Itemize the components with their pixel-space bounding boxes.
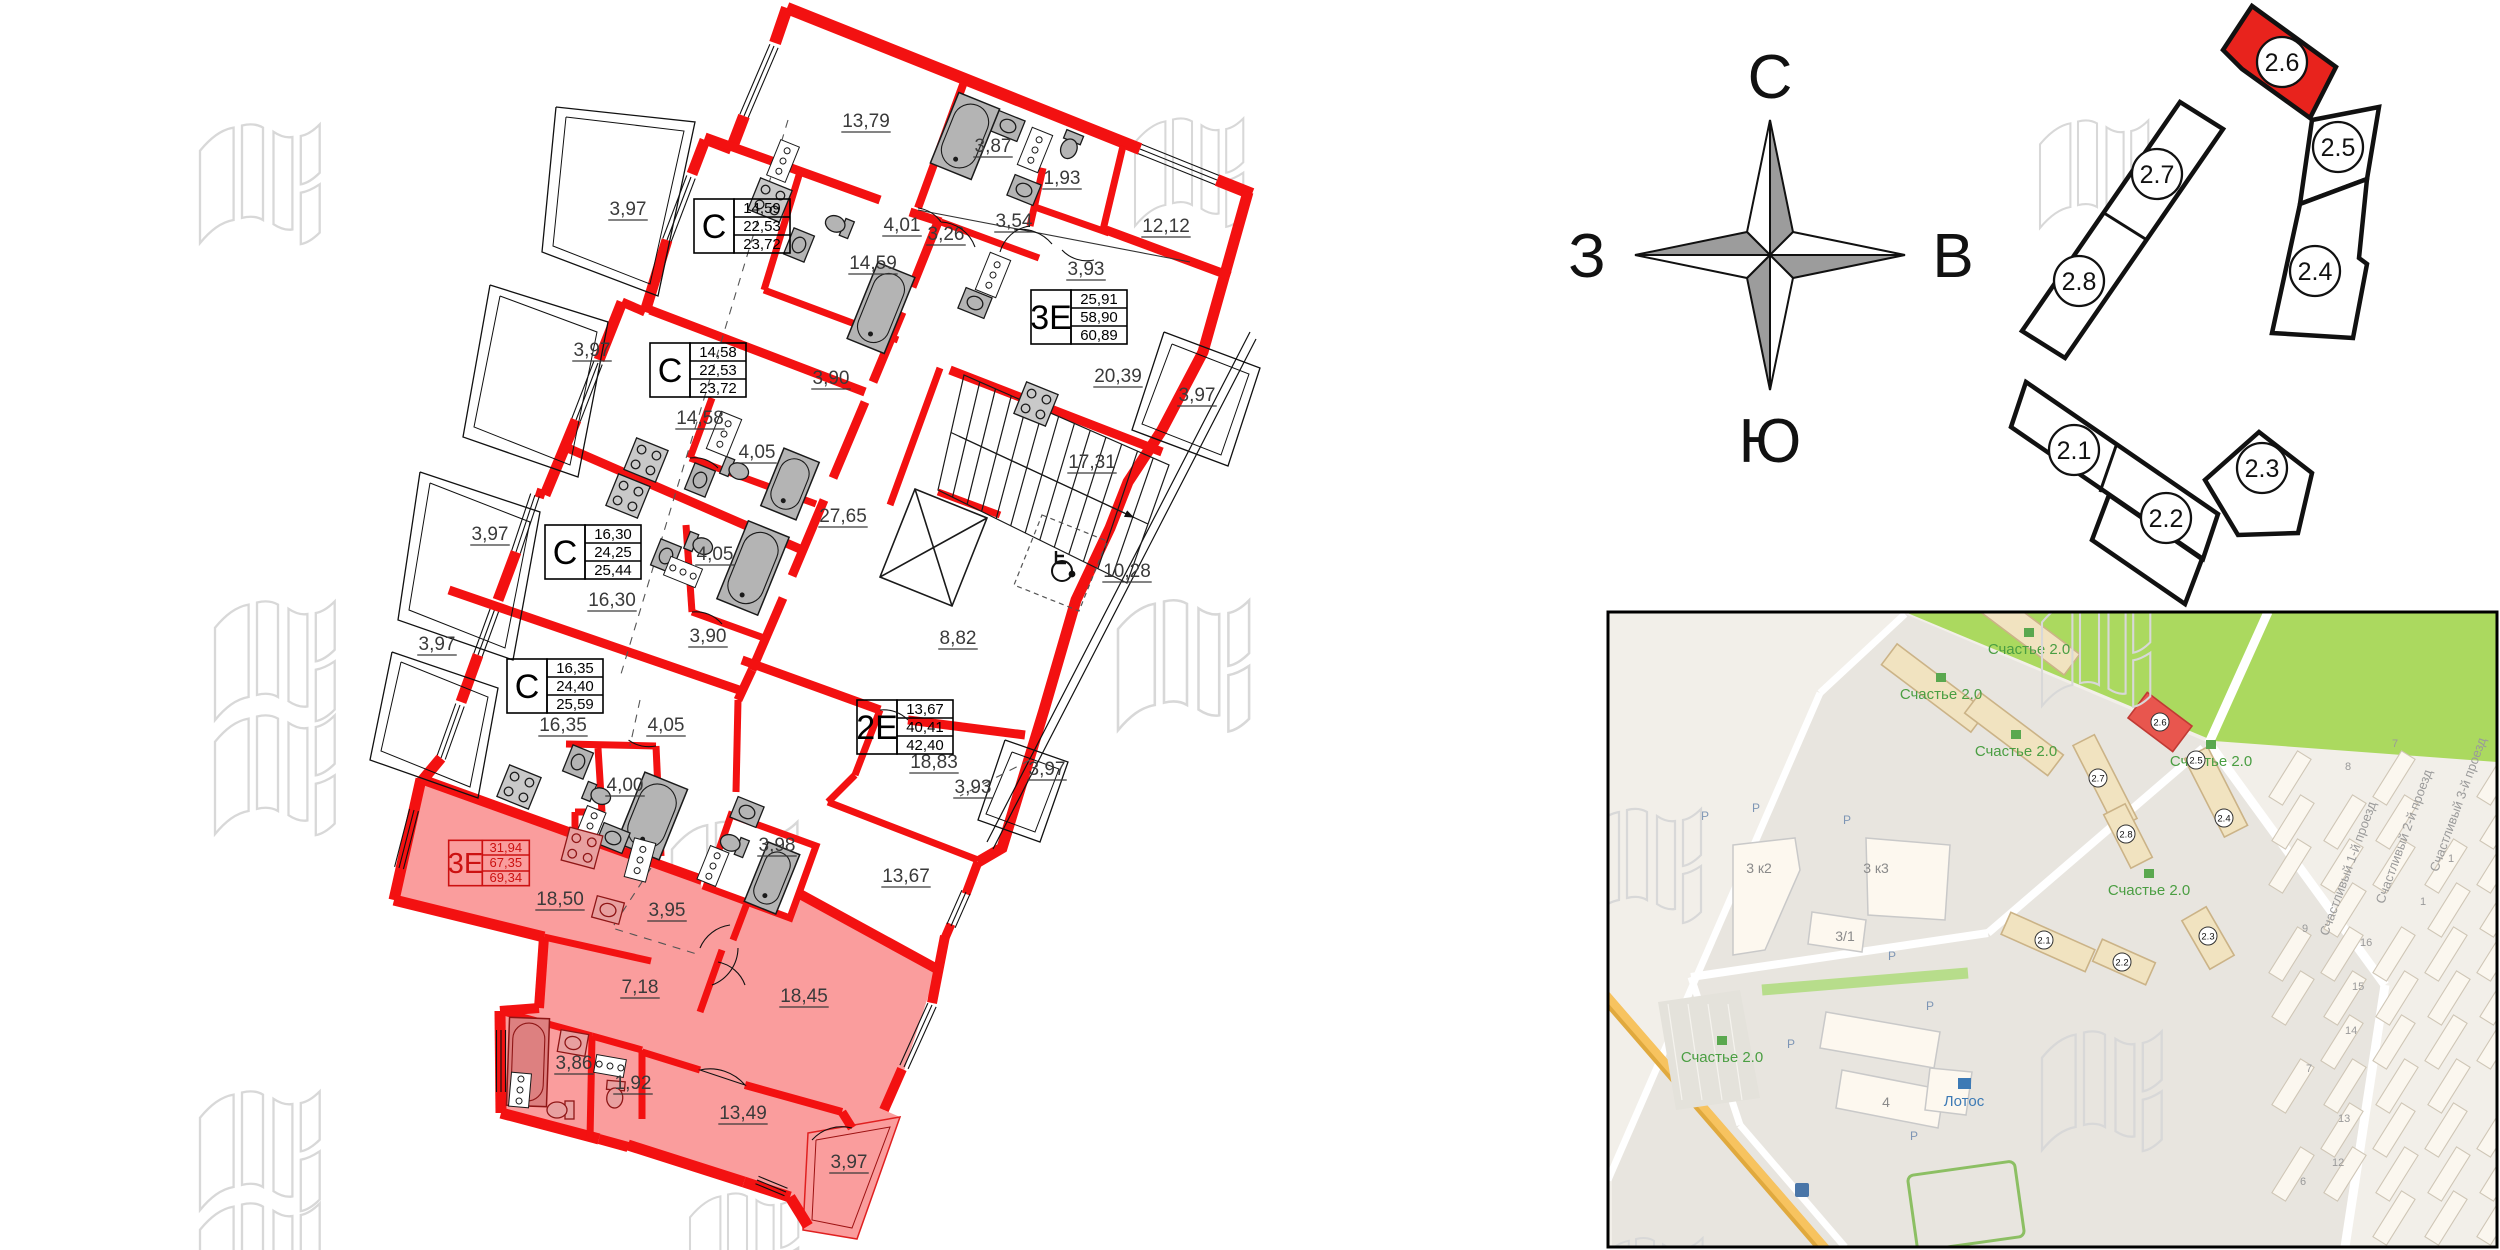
- svg-text:40,41: 40,41: [906, 719, 944, 736]
- svg-text:С: С: [702, 208, 727, 246]
- svg-text:Р: Р: [1926, 999, 1934, 1013]
- svg-text:20,39: 20,39: [1094, 366, 1142, 387]
- svg-text:3Е: 3Е: [448, 848, 483, 880]
- svg-text:3,95: 3,95: [649, 900, 686, 921]
- svg-text:23,72: 23,72: [743, 236, 781, 253]
- svg-text:3Е: 3Е: [1030, 299, 1072, 337]
- svg-text:25,44: 25,44: [594, 562, 632, 579]
- svg-text:2.8: 2.8: [2119, 830, 2132, 841]
- svg-text:Лотос: Лотос: [1944, 1093, 1985, 1110]
- svg-text:7,18: 7,18: [622, 977, 659, 998]
- svg-text:22,53: 22,53: [743, 218, 781, 235]
- svg-text:3,97: 3,97: [831, 1152, 868, 1173]
- svg-text:14,58: 14,58: [699, 344, 737, 361]
- svg-text:Счастье 2.0: Счастье 2.0: [1681, 1049, 1763, 1066]
- svg-text:13: 13: [2338, 1113, 2350, 1125]
- svg-text:18,83: 18,83: [910, 752, 958, 773]
- svg-text:14,59: 14,59: [849, 253, 897, 274]
- svg-text:В: В: [1932, 222, 1973, 291]
- svg-text:1,92: 1,92: [615, 1073, 652, 1094]
- svg-text:69,34: 69,34: [490, 870, 523, 885]
- svg-text:23,72: 23,72: [699, 380, 737, 397]
- svg-text:3,97: 3,97: [472, 524, 509, 545]
- svg-text:2.4: 2.4: [2298, 258, 2333, 286]
- svg-text:58,90: 58,90: [1080, 309, 1118, 326]
- svg-text:16,30: 16,30: [594, 526, 632, 543]
- svg-text:2.6: 2.6: [2265, 49, 2300, 77]
- svg-text:3,93: 3,93: [955, 777, 992, 798]
- svg-text:3,87: 3,87: [975, 136, 1012, 157]
- svg-text:24,25: 24,25: [594, 544, 632, 561]
- svg-text:Р: Р: [1701, 809, 1709, 823]
- svg-text:Р: Р: [1910, 1129, 1918, 1143]
- svg-text:24,40: 24,40: [556, 678, 594, 695]
- svg-text:2.1: 2.1: [2037, 936, 2050, 947]
- svg-text:Р: Р: [1787, 1037, 1795, 1051]
- svg-text:Р: Р: [1843, 813, 1851, 827]
- svg-text:9: 9: [2302, 923, 2308, 935]
- svg-text:8,82: 8,82: [940, 628, 977, 649]
- svg-text:14,59: 14,59: [743, 200, 781, 217]
- svg-text:67,35: 67,35: [490, 855, 523, 870]
- svg-text:С: С: [658, 352, 683, 390]
- svg-text:Счастье 2.0: Счастье 2.0: [2108, 882, 2190, 899]
- svg-text:12,12: 12,12: [1142, 216, 1190, 237]
- svg-text:13,49: 13,49: [719, 1103, 767, 1124]
- svg-text:2.1: 2.1: [2057, 437, 2092, 465]
- svg-text:10,28: 10,28: [1103, 561, 1151, 582]
- svg-text:Ю: Ю: [1739, 407, 1802, 476]
- svg-text:1,93: 1,93: [1044, 168, 1081, 189]
- svg-text:14,58: 14,58: [676, 408, 724, 429]
- svg-text:16,30: 16,30: [588, 590, 636, 611]
- svg-text:2.2: 2.2: [2115, 958, 2128, 969]
- svg-text:15: 15: [2352, 981, 2364, 993]
- svg-text:31,94: 31,94: [490, 840, 523, 855]
- svg-text:18,50: 18,50: [536, 889, 584, 910]
- svg-text:14: 14: [2345, 1025, 2357, 1037]
- svg-text:13,67: 13,67: [882, 866, 930, 887]
- svg-text:С: С: [553, 534, 578, 572]
- svg-text:2.5: 2.5: [2189, 756, 2202, 767]
- svg-text:2.8: 2.8: [2062, 268, 2097, 296]
- svg-text:4,01: 4,01: [884, 215, 921, 236]
- svg-text:3,90: 3,90: [690, 626, 727, 647]
- svg-text:З: З: [1568, 222, 1605, 291]
- svg-text:1: 1: [2420, 896, 2426, 908]
- svg-text:3,98: 3,98: [759, 835, 796, 856]
- svg-text:1: 1: [2448, 853, 2454, 865]
- svg-text:2.3: 2.3: [2201, 932, 2214, 943]
- svg-text:3 к3: 3 к3: [1863, 860, 1889, 876]
- svg-text:16,35: 16,35: [539, 715, 587, 736]
- svg-text:3/1: 3/1: [1835, 928, 1855, 944]
- svg-text:2.6: 2.6: [2153, 718, 2166, 729]
- svg-text:4: 4: [1882, 1094, 1890, 1110]
- svg-text:4,05: 4,05: [739, 442, 776, 463]
- svg-text:8: 8: [2345, 761, 2351, 773]
- svg-text:2.2: 2.2: [2149, 505, 2184, 533]
- svg-text:3,97: 3,97: [1179, 385, 1216, 406]
- svg-text:13,67: 13,67: [906, 701, 944, 718]
- svg-text:3,97: 3,97: [610, 199, 647, 220]
- svg-text:2.5: 2.5: [2321, 134, 2356, 162]
- svg-text:С: С: [515, 668, 540, 706]
- svg-text:3,54: 3,54: [996, 211, 1033, 232]
- svg-text:Р: Р: [1752, 801, 1760, 815]
- svg-text:42,40: 42,40: [906, 737, 944, 754]
- svg-text:13,79: 13,79: [842, 111, 890, 132]
- svg-text:Счастье 2.0: Счастье 2.0: [2170, 753, 2252, 770]
- svg-text:17,31: 17,31: [1068, 452, 1116, 473]
- svg-text:3 к2: 3 к2: [1746, 860, 1772, 876]
- svg-text:Счастье 2.0: Счастье 2.0: [1988, 641, 2070, 658]
- svg-text:3,97: 3,97: [419, 634, 456, 655]
- svg-text:18,45: 18,45: [780, 986, 828, 1007]
- svg-text:Счастье 2.0: Счастье 2.0: [1975, 743, 2057, 760]
- svg-text:22,53: 22,53: [699, 362, 737, 379]
- svg-text:12: 12: [2332, 1157, 2344, 1169]
- svg-text:Р: Р: [1888, 949, 1896, 963]
- svg-text:3,93: 3,93: [1068, 259, 1105, 280]
- svg-text:16,35: 16,35: [556, 660, 594, 677]
- svg-text:7: 7: [2306, 1063, 2312, 1075]
- svg-text:2.7: 2.7: [2140, 161, 2175, 189]
- svg-text:6: 6: [2300, 1176, 2306, 1188]
- svg-text:27,65: 27,65: [819, 506, 867, 527]
- svg-text:25,91: 25,91: [1080, 291, 1118, 308]
- svg-text:25,59: 25,59: [556, 696, 594, 713]
- svg-text:3,97: 3,97: [1029, 759, 1066, 780]
- svg-text:60,89: 60,89: [1080, 327, 1118, 344]
- svg-text:4,05: 4,05: [697, 544, 734, 565]
- svg-text:16: 16: [2360, 937, 2372, 949]
- svg-text:2.7: 2.7: [2091, 774, 2104, 785]
- svg-text:3,86: 3,86: [556, 1053, 593, 1074]
- svg-text:2.4: 2.4: [2217, 814, 2230, 825]
- svg-text:7: 7: [2392, 738, 2398, 750]
- svg-text:2.3: 2.3: [2245, 455, 2280, 483]
- svg-text:4,00: 4,00: [607, 775, 644, 796]
- svg-text:2Е: 2Е: [856, 709, 898, 747]
- svg-text:3,90: 3,90: [813, 368, 850, 389]
- svg-text:С: С: [1748, 43, 1793, 112]
- svg-text:Счастье 2.0: Счастье 2.0: [1900, 686, 1982, 703]
- svg-text:4,05: 4,05: [648, 715, 685, 736]
- svg-text:3,97: 3,97: [574, 340, 611, 361]
